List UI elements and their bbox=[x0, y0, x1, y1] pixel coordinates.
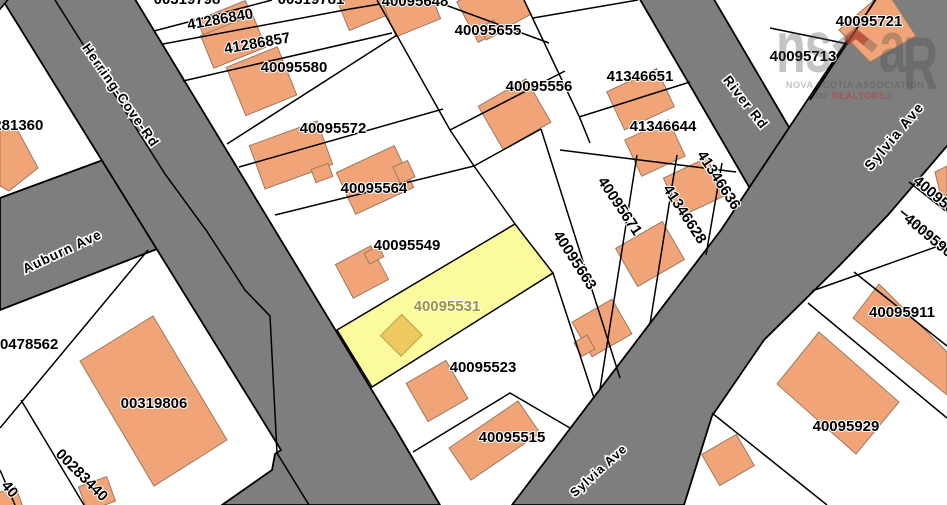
svg-text:40095911: 40095911 bbox=[869, 304, 935, 321]
svg-text:40095515: 40095515 bbox=[479, 429, 546, 446]
svg-text:40095556: 40095556 bbox=[506, 78, 573, 95]
svg-text:40095648: 40095648 bbox=[382, 0, 449, 10]
svg-text:40095549: 40095549 bbox=[374, 237, 441, 254]
svg-text:R: R bbox=[903, 23, 938, 106]
svg-text:41346644: 41346644 bbox=[630, 118, 697, 135]
svg-text:00319781: 00319781 bbox=[278, 0, 345, 8]
svg-text:41281360: 41281360 bbox=[0, 117, 43, 134]
svg-text:00478562: 00478562 bbox=[0, 336, 58, 353]
svg-text:40095531: 40095531 bbox=[414, 298, 481, 315]
svg-text:40095929: 40095929 bbox=[813, 418, 880, 435]
svg-text:OF REALTORS®: OF REALTORS® bbox=[815, 91, 892, 101]
svg-text:40095523: 40095523 bbox=[450, 359, 517, 376]
svg-text:00319806: 00319806 bbox=[121, 395, 188, 412]
svg-text:40095655: 40095655 bbox=[455, 22, 522, 39]
svg-text:00319798: 00319798 bbox=[154, 0, 221, 8]
svg-text:40095572: 40095572 bbox=[300, 120, 367, 137]
svg-text:40095580: 40095580 bbox=[261, 59, 328, 76]
svg-text:40095564: 40095564 bbox=[341, 180, 408, 197]
svg-text:41346651: 41346651 bbox=[607, 68, 674, 85]
svg-text:ns: ns bbox=[776, 7, 831, 88]
svg-text:NOVA SCOTIA ASSOCIATION: NOVA SCOTIA ASSOCIATION bbox=[786, 80, 925, 90]
